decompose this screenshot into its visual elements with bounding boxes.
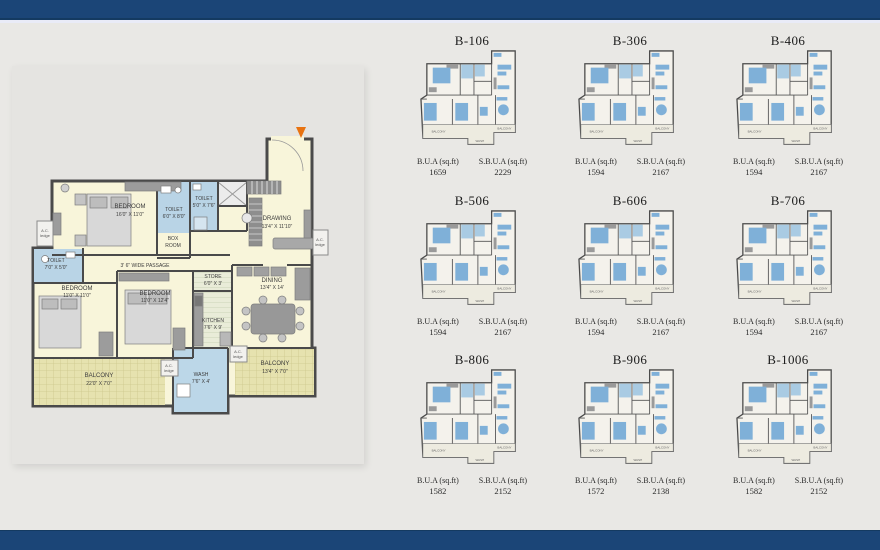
room-label-bedroom-1: BEDROOM bbox=[114, 204, 145, 210]
room-label-box-room: BOX bbox=[168, 236, 179, 242]
bua-value: 1582 bbox=[417, 486, 459, 496]
room-label-bedroom-2: BEDROOM bbox=[61, 286, 92, 292]
unit-title: B-106 bbox=[455, 33, 490, 48]
unit-thumbnail-plan[interactable]: BALCONY WASH BALCONY bbox=[725, 367, 851, 473]
bua-value: 1594 bbox=[575, 327, 617, 337]
room-label-dining: DINING bbox=[262, 278, 283, 284]
unit-card-b1006[interactable]: B-1006 BALCONY WASH BALCONY B.U.A (sq.ft… bbox=[712, 352, 864, 507]
bua-value: 1594 bbox=[733, 167, 775, 177]
top-accent-strip bbox=[0, 20, 880, 23]
mini-floorplan-svg: BALCONY WASH BALCONY bbox=[409, 208, 535, 314]
bua-value: 1594 bbox=[733, 327, 775, 337]
svg-text:22'0" X 7'0": 22'0" X 7'0" bbox=[86, 381, 112, 387]
room-label-toilet-3: TOILET bbox=[47, 258, 64, 264]
unit-card-b806[interactable]: B-806 BALCONY WASH BALCONY B.U.A (sq.ft)… bbox=[396, 352, 548, 507]
sbua-value: 2152 bbox=[479, 486, 527, 496]
bua-label: B.U.A (sq.ft) bbox=[733, 476, 775, 485]
sbua-value: 2167 bbox=[637, 327, 685, 337]
sbua-label: S.B.U.A (sq.ft) bbox=[637, 157, 685, 166]
sbua-label: S.B.U.A (sq.ft) bbox=[479, 476, 527, 485]
unit-title: B-906 bbox=[613, 352, 648, 367]
unit-thumbnail-plan[interactable]: BALCONY WASH BALCONY bbox=[567, 208, 693, 314]
svg-text:WASH: WASH bbox=[633, 459, 642, 463]
mini-floorplan-svg: BALCONY WASH BALCONY bbox=[409, 48, 535, 154]
room-label-wash: WASH bbox=[194, 372, 209, 378]
svg-text:WASH: WASH bbox=[633, 139, 642, 143]
unit-thumbnail-plan[interactable]: BALCONY WASH BALCONY bbox=[725, 48, 851, 154]
mini-floorplan-svg: BALCONY WASH BALCONY bbox=[567, 208, 693, 314]
svg-text:BALCONY: BALCONY bbox=[590, 289, 604, 293]
unit-card-b106[interactable]: B-106 BALCONY WASH BALCONY B.U.A (sq.ft)… bbox=[396, 33, 548, 188]
svg-text:11'0" X 12'4": 11'0" X 12'4" bbox=[141, 298, 169, 304]
svg-text:BALCONY: BALCONY bbox=[813, 446, 827, 450]
svg-text:11'0" X 11'0": 11'0" X 11'0" bbox=[63, 293, 91, 299]
svg-text:7'6" X 9': 7'6" X 9' bbox=[204, 325, 222, 331]
sbua-value: 2152 bbox=[795, 486, 843, 496]
mini-floorplan-svg: BALCONY WASH BALCONY bbox=[567, 367, 693, 473]
svg-text:13'4" X 14': 13'4" X 14' bbox=[260, 285, 284, 291]
bua-label: B.U.A (sq.ft) bbox=[417, 157, 459, 166]
sbua-label: S.B.U.A (sq.ft) bbox=[795, 157, 843, 166]
bottom-navy-bar bbox=[0, 530, 880, 550]
unit-thumbnail-plan[interactable]: BALCONY WASH BALCONY bbox=[409, 208, 535, 314]
unit-title: B-706 bbox=[771, 193, 806, 208]
room-label-toilet-2: TOILET bbox=[195, 196, 212, 202]
main-floorplan-svg: A.C. ledge A.C. ledge A.C. ledge A.C. le… bbox=[25, 118, 341, 424]
unit-thumbnail-plan[interactable]: BALCONY WASH BALCONY bbox=[409, 48, 535, 154]
unit-thumbnail-plan[interactable]: BALCONY WASH BALCONY bbox=[725, 208, 851, 314]
room-label-drawing: DRAWING bbox=[263, 216, 292, 222]
svg-text:BALCONY: BALCONY bbox=[655, 446, 669, 450]
bua-label: B.U.A (sq.ft) bbox=[575, 476, 617, 485]
svg-text:WASH: WASH bbox=[791, 299, 800, 303]
bua-value: 1582 bbox=[733, 486, 775, 496]
svg-text:13'4" X 11'10": 13'4" X 11'10" bbox=[262, 224, 293, 230]
unit-card-b306[interactable]: B-306 BALCONY WASH BALCONY B.U.A (sq.ft)… bbox=[554, 33, 706, 188]
svg-text:WASH: WASH bbox=[475, 139, 484, 143]
room-label-kitchen: KITCHEN bbox=[202, 318, 224, 324]
svg-text:BALCONY: BALCONY bbox=[497, 126, 511, 130]
unit-card-b606[interactable]: B-606 BALCONY WASH BALCONY B.U.A (sq.ft)… bbox=[554, 193, 706, 348]
svg-text:BALCONY: BALCONY bbox=[590, 129, 604, 133]
bua-label: B.U.A (sq.ft) bbox=[575, 317, 617, 326]
bua-label: B.U.A (sq.ft) bbox=[575, 157, 617, 166]
unit-thumbnail-plan[interactable]: BALCONY WASH BALCONY bbox=[567, 48, 693, 154]
room-label-toilet-1: TOILET bbox=[165, 207, 182, 213]
svg-text:BALCONY: BALCONY bbox=[497, 286, 511, 290]
sbua-value: 2138 bbox=[637, 486, 685, 496]
sbua-value: 2167 bbox=[795, 327, 843, 337]
svg-text:WASH: WASH bbox=[475, 459, 484, 463]
room-label-balcony-1: BALCONY bbox=[85, 373, 114, 379]
svg-text:6'0" X 8'0": 6'0" X 8'0" bbox=[163, 214, 186, 220]
svg-text:BALCONY: BALCONY bbox=[748, 129, 762, 133]
bua-label: B.U.A (sq.ft) bbox=[417, 476, 459, 485]
svg-text:WASH: WASH bbox=[633, 299, 642, 303]
svg-text:BALCONY: BALCONY bbox=[748, 449, 762, 453]
svg-text:BALCONY: BALCONY bbox=[748, 289, 762, 293]
bua-label: B.U.A (sq.ft) bbox=[417, 317, 459, 326]
svg-text:BALCONY: BALCONY bbox=[590, 449, 604, 453]
sbua-value: 2229 bbox=[479, 167, 527, 177]
bua-value: 1659 bbox=[417, 167, 459, 177]
svg-text:ledge: ledge bbox=[164, 368, 175, 373]
unit-thumbnail-plan[interactable]: BALCONY WASH BALCONY bbox=[567, 367, 693, 473]
sbua-label: S.B.U.A (sq.ft) bbox=[795, 317, 843, 326]
mini-floorplan-svg: BALCONY WASH BALCONY bbox=[725, 367, 851, 473]
svg-text:WASH: WASH bbox=[791, 459, 800, 463]
svg-text:BALCONY: BALCONY bbox=[655, 126, 669, 130]
unit-card-b906[interactable]: B-906 BALCONY WASH BALCONY B.U.A (sq.ft)… bbox=[554, 352, 706, 507]
bua-value: 1594 bbox=[575, 167, 617, 177]
svg-text:ROOM: ROOM bbox=[165, 243, 181, 249]
svg-text:BALCONY: BALCONY bbox=[432, 289, 446, 293]
sbua-label: S.B.U.A (sq.ft) bbox=[479, 157, 527, 166]
room-label-store: STORE bbox=[204, 274, 222, 280]
unit-title: B-1006 bbox=[767, 352, 808, 367]
unit-title: B-806 bbox=[455, 352, 490, 367]
svg-text:BALCONY: BALCONY bbox=[432, 449, 446, 453]
svg-text:13'4" X 7'0": 13'4" X 7'0" bbox=[262, 369, 288, 375]
unit-title: B-406 bbox=[771, 33, 806, 48]
svg-text:BALCONY: BALCONY bbox=[813, 126, 827, 130]
svg-text:ledge: ledge bbox=[233, 354, 244, 359]
sbua-label: S.B.U.A (sq.ft) bbox=[637, 476, 685, 485]
unit-card-b706[interactable]: B-706 BALCONY WASH BALCONY B.U.A (sq.ft)… bbox=[712, 193, 864, 348]
main-floorplan[interactable]: A.C. ledge A.C. ledge A.C. ledge A.C. le… bbox=[25, 118, 341, 424]
unit-thumbnail-plan[interactable]: BALCONY WASH BALCONY bbox=[409, 367, 535, 473]
bua-label: B.U.A (sq.ft) bbox=[733, 157, 775, 166]
top-navy-bar bbox=[0, 0, 880, 20]
unit-card-b406[interactable]: B-406 BALCONY WASH BALCONY B.U.A (sq.ft)… bbox=[712, 33, 864, 188]
svg-text:BALCONY: BALCONY bbox=[813, 286, 827, 290]
svg-text:ledge: ledge bbox=[315, 242, 326, 247]
svg-text:BALCONY: BALCONY bbox=[655, 286, 669, 290]
svg-text:16'0" X 11'0": 16'0" X 11'0" bbox=[116, 212, 144, 218]
bua-label: B.U.A (sq.ft) bbox=[733, 317, 775, 326]
passage-label: 3' 6" WIDE PASSAGE bbox=[120, 263, 170, 269]
svg-text:ledge: ledge bbox=[40, 233, 51, 238]
sbua-value: 2167 bbox=[795, 167, 843, 177]
svg-text:5'0" X 7'6": 5'0" X 7'6" bbox=[193, 203, 216, 209]
bua-value: 1572 bbox=[575, 486, 617, 496]
unit-title: B-606 bbox=[613, 193, 648, 208]
room-label-balcony-2: BALCONY bbox=[261, 361, 290, 367]
sbua-label: S.B.U.A (sq.ft) bbox=[637, 317, 685, 326]
svg-text:6'0" X 3': 6'0" X 3' bbox=[204, 281, 222, 287]
mini-floorplan-svg: BALCONY WASH BALCONY bbox=[725, 48, 851, 154]
mini-floorplan-svg: BALCONY WASH BALCONY bbox=[725, 208, 851, 314]
svg-text:BALCONY: BALCONY bbox=[432, 129, 446, 133]
sbua-label: S.B.U.A (sq.ft) bbox=[795, 476, 843, 485]
svg-text:7'0" X 5'0": 7'0" X 5'0" bbox=[45, 265, 68, 271]
units-grid: B-106 BALCONY WASH BALCONY B.U.A (sq.ft)… bbox=[396, 33, 864, 507]
sbua-value: 2167 bbox=[637, 167, 685, 177]
unit-title: B-506 bbox=[455, 193, 490, 208]
unit-card-b506[interactable]: B-506 BALCONY WASH BALCONY B.U.A (sq.ft)… bbox=[396, 193, 548, 348]
unit-title: B-306 bbox=[613, 33, 648, 48]
mini-floorplan-svg: BALCONY WASH BALCONY bbox=[567, 48, 693, 154]
sbua-label: S.B.U.A (sq.ft) bbox=[479, 317, 527, 326]
svg-text:WASH: WASH bbox=[791, 139, 800, 143]
mini-floorplan-svg: BALCONY WASH BALCONY bbox=[409, 367, 535, 473]
svg-text:7'6" X 4': 7'6" X 4' bbox=[192, 379, 210, 385]
room-label-bedroom-3: BEDROOM bbox=[139, 291, 170, 297]
svg-text:WASH: WASH bbox=[475, 299, 484, 303]
svg-text:BALCONY: BALCONY bbox=[497, 446, 511, 450]
sbua-value: 2167 bbox=[479, 327, 527, 337]
bua-value: 1594 bbox=[417, 327, 459, 337]
